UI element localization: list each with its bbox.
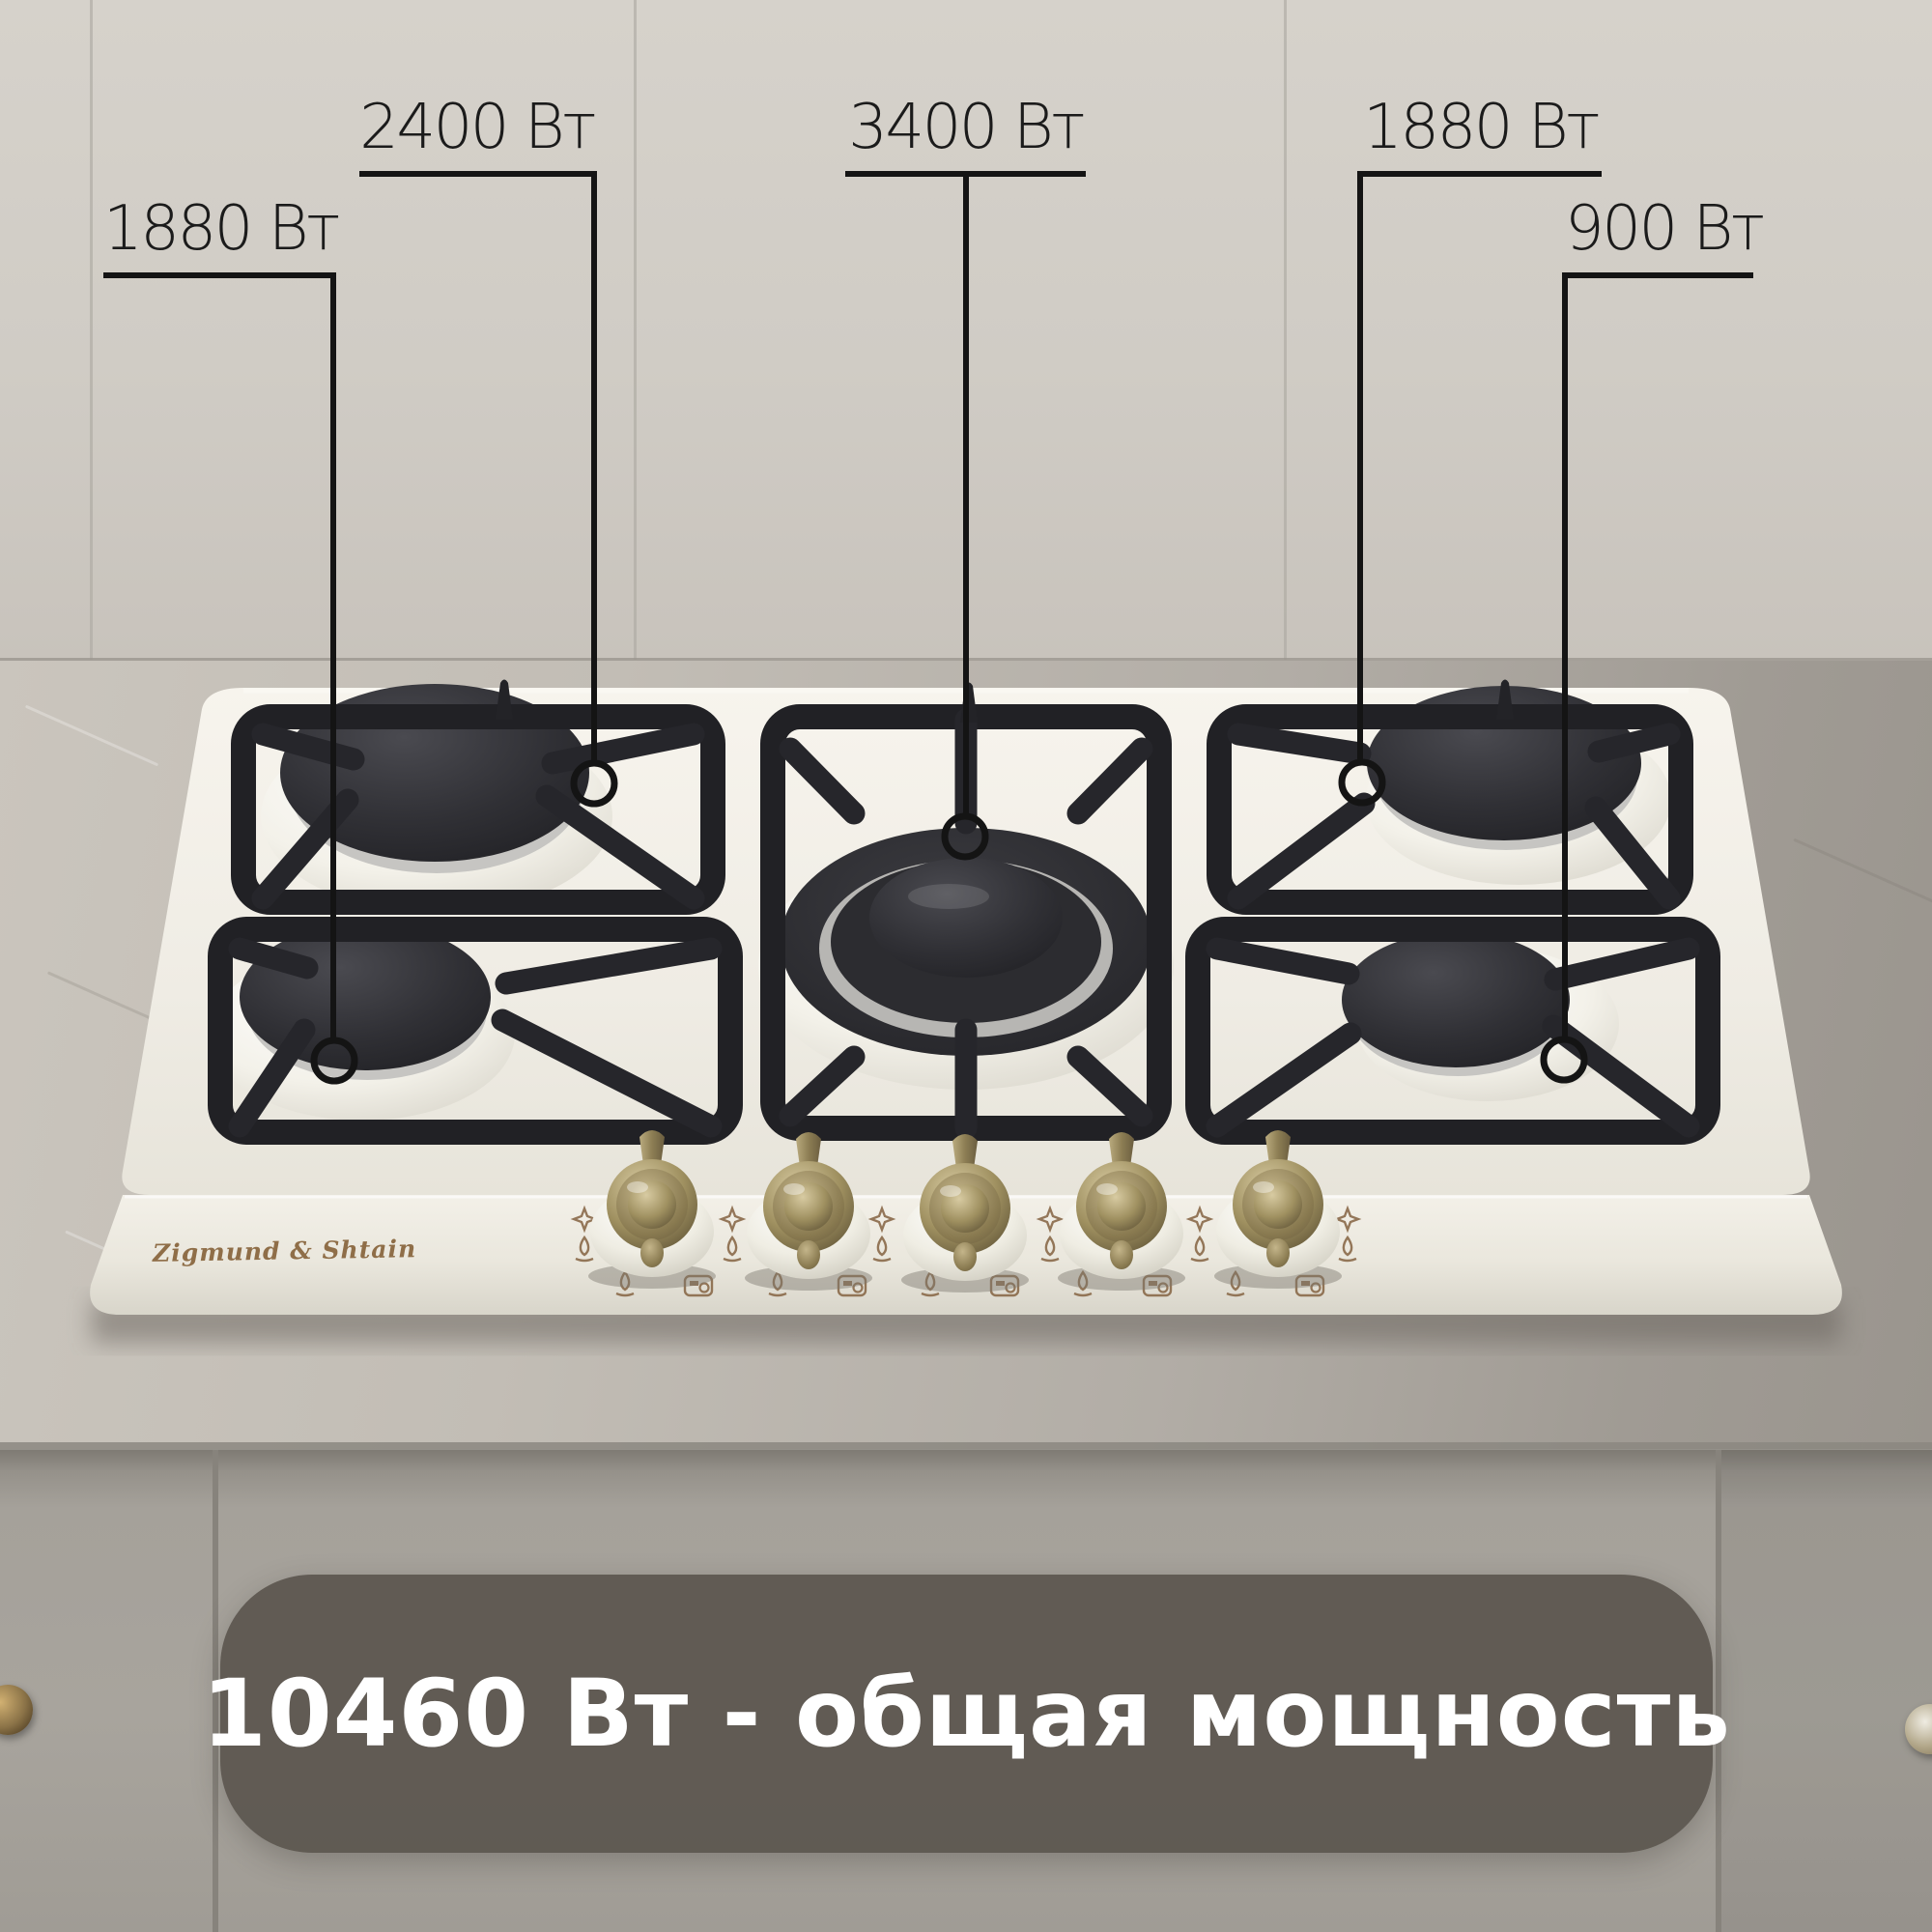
burner-cap-front-left: [240, 923, 491, 1070]
power-label-back-left: 2400 Вт: [359, 97, 594, 158]
total-power-banner: 10460 Вт - общая мощность: [220, 1575, 1713, 1853]
power-label-center: 3400 Вт: [845, 97, 1086, 158]
brand-logo: Zigmund & Shtain: [153, 1236, 365, 1267]
power-label-front-right: 900 Вт: [1565, 198, 1755, 260]
kitchen-scene: Zigmund & Shtain 2400 Вт 3400 Вт 1880 Вт…: [0, 0, 1932, 1932]
total-power-text: 10460 Вт - общая мощность: [202, 1660, 1731, 1768]
burner-cap-front-right: [1342, 932, 1570, 1067]
power-label-front-left: 1880 Вт: [103, 198, 335, 260]
power-label-back-right: 1880 Вт: [1359, 97, 1602, 158]
